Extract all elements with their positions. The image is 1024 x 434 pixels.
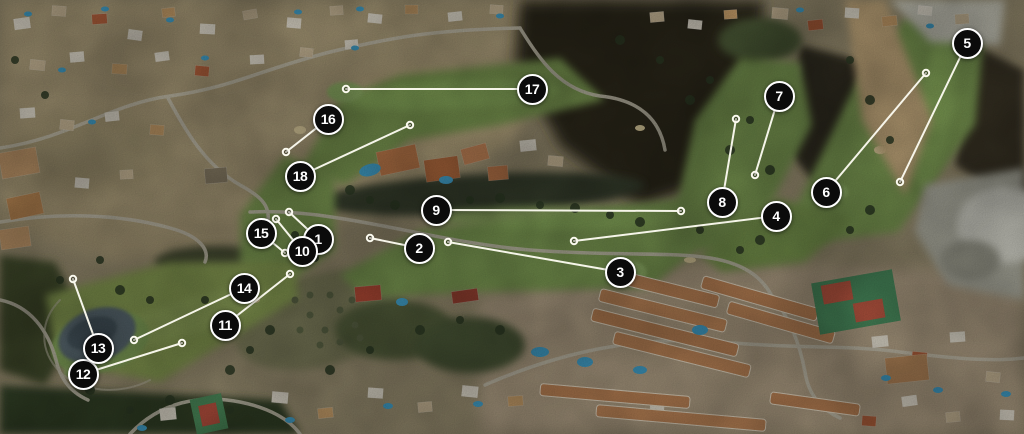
- hole-marker-11[interactable]: 11: [210, 310, 241, 341]
- hole-number-label: 8: [718, 195, 725, 209]
- hole-number-label: 9: [432, 203, 439, 217]
- hole-number-label: 14: [237, 281, 252, 295]
- hole-number-label: 12: [76, 367, 91, 381]
- hole-number-label: 16: [321, 112, 336, 126]
- hole-number-label: 11: [218, 318, 232, 332]
- hole-number-label: 2: [415, 241, 422, 255]
- hole-marker-3[interactable]: 3: [605, 257, 636, 288]
- hole-marker-4[interactable]: 4: [761, 201, 792, 232]
- hole-number-label: 13: [91, 341, 106, 355]
- hole-marker-6[interactable]: 6: [811, 177, 842, 208]
- hole-marker-8[interactable]: 8: [707, 187, 738, 218]
- hole-number-label: 4: [772, 209, 779, 223]
- hole-marker-10[interactable]: 10: [287, 236, 318, 267]
- hole-marker-17[interactable]: 17: [517, 74, 548, 105]
- hole-number-label: 10: [295, 244, 310, 258]
- hole-marker-2[interactable]: 2: [404, 233, 435, 264]
- golf-course-map: 123456789101112131415161718: [0, 0, 1024, 434]
- hole-number-label: 15: [254, 226, 269, 240]
- hole-number-label: 5: [963, 36, 970, 50]
- hole-number-label: 3: [616, 265, 623, 279]
- hole-number-label: 18: [293, 169, 308, 183]
- satellite-terrain-image: [0, 0, 1024, 434]
- hole-number-label: 17: [525, 82, 540, 96]
- hole-marker-16[interactable]: 16: [313, 104, 344, 135]
- hole-marker-15[interactable]: 15: [246, 218, 277, 249]
- hole-number-label: 7: [775, 89, 782, 103]
- hole-marker-13[interactable]: 13: [83, 333, 114, 364]
- hole-marker-18[interactable]: 18: [285, 161, 316, 192]
- grain-texture: [0, 0, 1024, 434]
- hole-number-label: 6: [822, 185, 829, 199]
- hole-marker-7[interactable]: 7: [764, 81, 795, 112]
- hole-marker-14[interactable]: 14: [229, 273, 260, 304]
- hole-marker-5[interactable]: 5: [952, 28, 983, 59]
- hole-marker-9[interactable]: 9: [421, 195, 452, 226]
